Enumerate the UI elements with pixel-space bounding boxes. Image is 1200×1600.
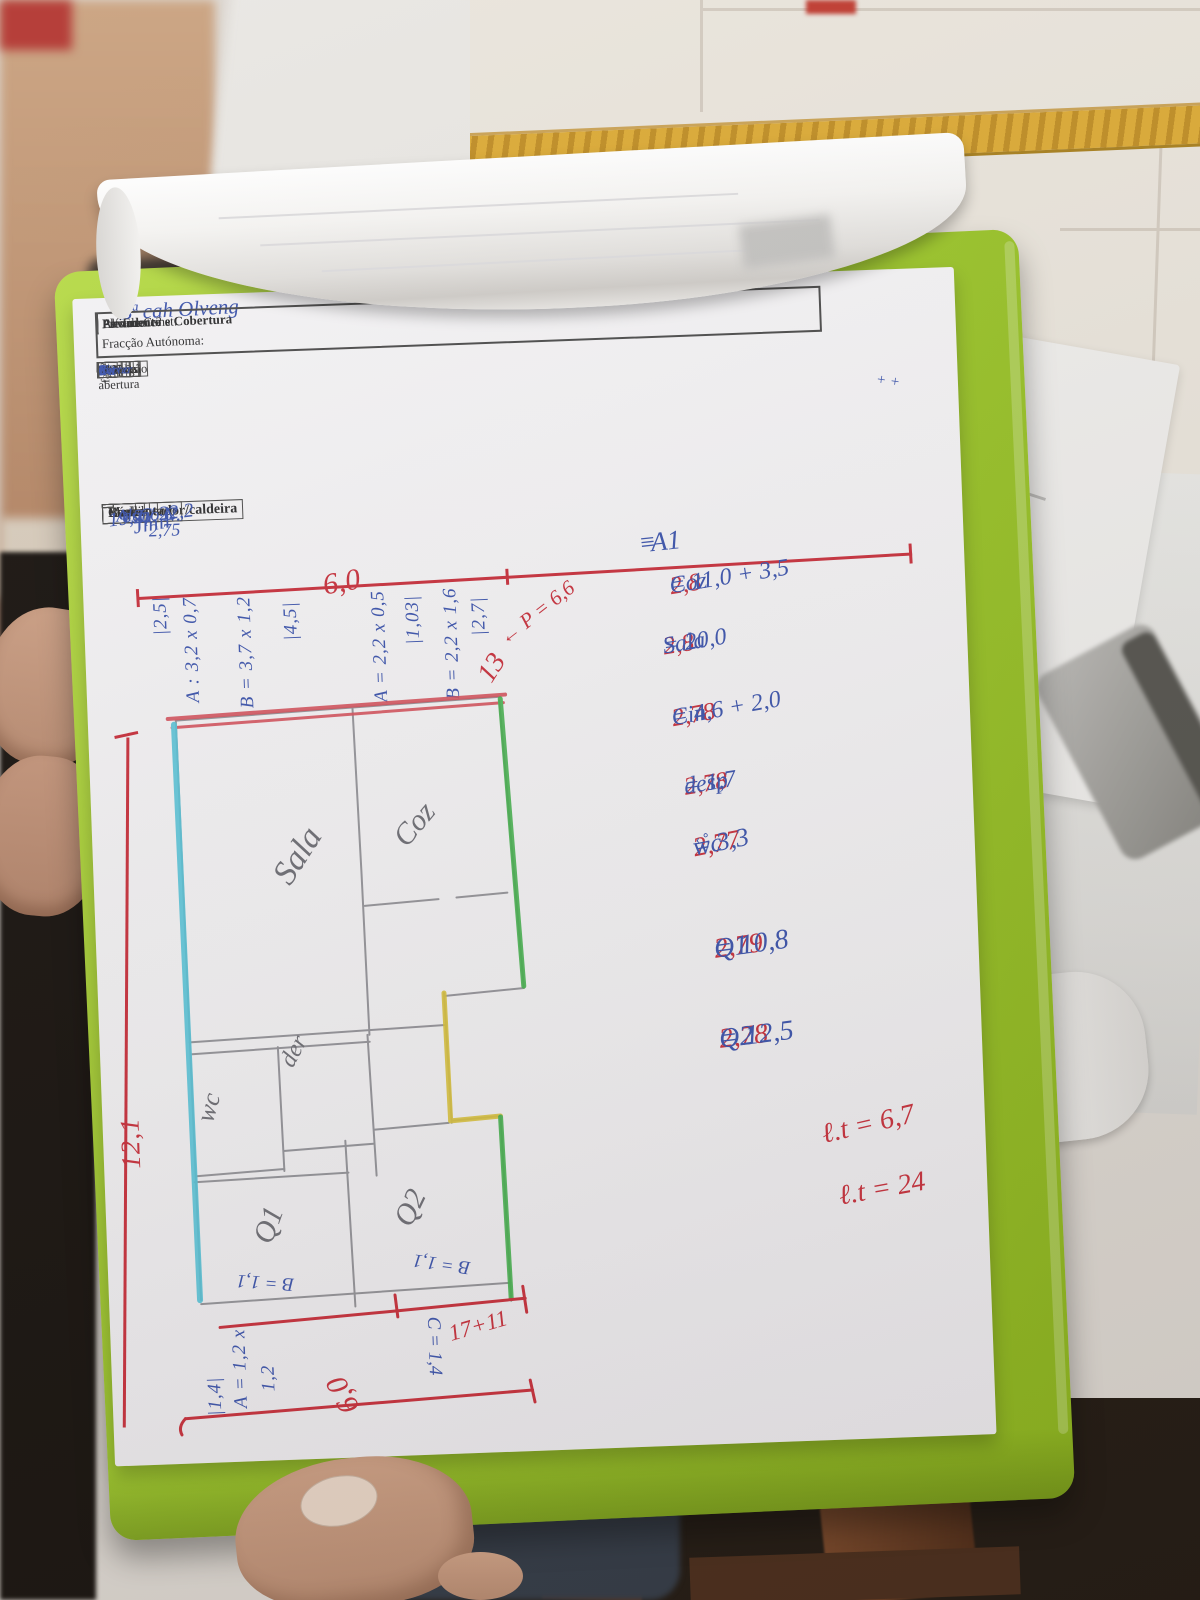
see-through-line	[260, 219, 820, 246]
total-note-1: ℓ.t = 6,7	[819, 1098, 918, 1151]
red-dimension-line-left	[123, 737, 130, 1427]
tile-grout-line	[700, 0, 703, 112]
dim-note-b: 1,2	[257, 1364, 280, 1392]
dim-note: |2,5|	[149, 596, 172, 636]
survey-sheet: Bª cah Olveng Fracção Autónoma: Ano de C…	[72, 267, 996, 1467]
dim-note: A = 2,2 x 0,5	[367, 590, 393, 703]
dim-note-b: A = 1,2 x	[228, 1328, 253, 1408]
dim-note: A : 3,2 x 0,7	[179, 597, 205, 703]
see-through-line	[322, 247, 802, 272]
room-label-q2: Q2	[387, 1184, 433, 1231]
value: = 10,8	[712, 924, 791, 966]
dim-perimeter: ← P = 6,6	[494, 575, 580, 650]
dim-note: B = 3,7 x 1,2	[233, 596, 259, 709]
margin-plus-marks: + +	[875, 372, 901, 392]
dim-note-b: C = 1,4	[422, 1316, 446, 1376]
fingertip	[438, 1552, 523, 1600]
value: = 11,0 + 3,5	[668, 554, 791, 600]
dim-tick	[909, 543, 913, 563]
hw-mark: Ue	[98, 363, 116, 381]
dim-note-b: B = 1,1	[236, 1269, 295, 1295]
photo-scene: Bª cah Olveng Fracção Autónoma: Ano de C…	[0, 0, 1200, 1600]
dim-note: |2,7|	[467, 596, 490, 636]
value: = 12,5	[717, 1015, 795, 1056]
dim-thirteen: 13	[471, 648, 513, 689]
dim-note: B = 2,2 x 1,6	[439, 587, 465, 700]
red-dimension-line-top	[138, 552, 912, 600]
red-object-corner	[0, 0, 72, 50]
value: = 1,7	[682, 766, 738, 801]
value: = 4,6 + 2,0	[670, 686, 783, 732]
value: = 20,0	[661, 624, 729, 661]
dim-width-60: 6,0	[320, 562, 363, 602]
room-label-sala: Sala	[266, 820, 330, 891]
room-label-coz: Coz	[387, 796, 442, 853]
room-label-q1: Q1	[247, 1202, 291, 1248]
dim-tick	[136, 589, 140, 607]
tile-grout-line	[1060, 228, 1200, 231]
tile-grout-line	[700, 8, 1200, 11]
dim-note: |1,03|	[401, 594, 425, 644]
total-note-2: ℓ.t = 24	[836, 1166, 928, 1213]
a1-label: A1	[649, 524, 682, 558]
red-object-top	[806, 0, 856, 14]
heater-table: Esquentador/caldeira Marca Modelo Idade …	[102, 478, 828, 505]
dim-note: |4,5|	[280, 601, 303, 641]
room-label-wc: wc	[190, 1089, 226, 1125]
see-through-line	[219, 193, 739, 219]
dim-note-b: |1,4|	[204, 1376, 227, 1416]
dim-left-height: 12,1	[114, 1117, 147, 1169]
dim-tick	[505, 569, 509, 585]
